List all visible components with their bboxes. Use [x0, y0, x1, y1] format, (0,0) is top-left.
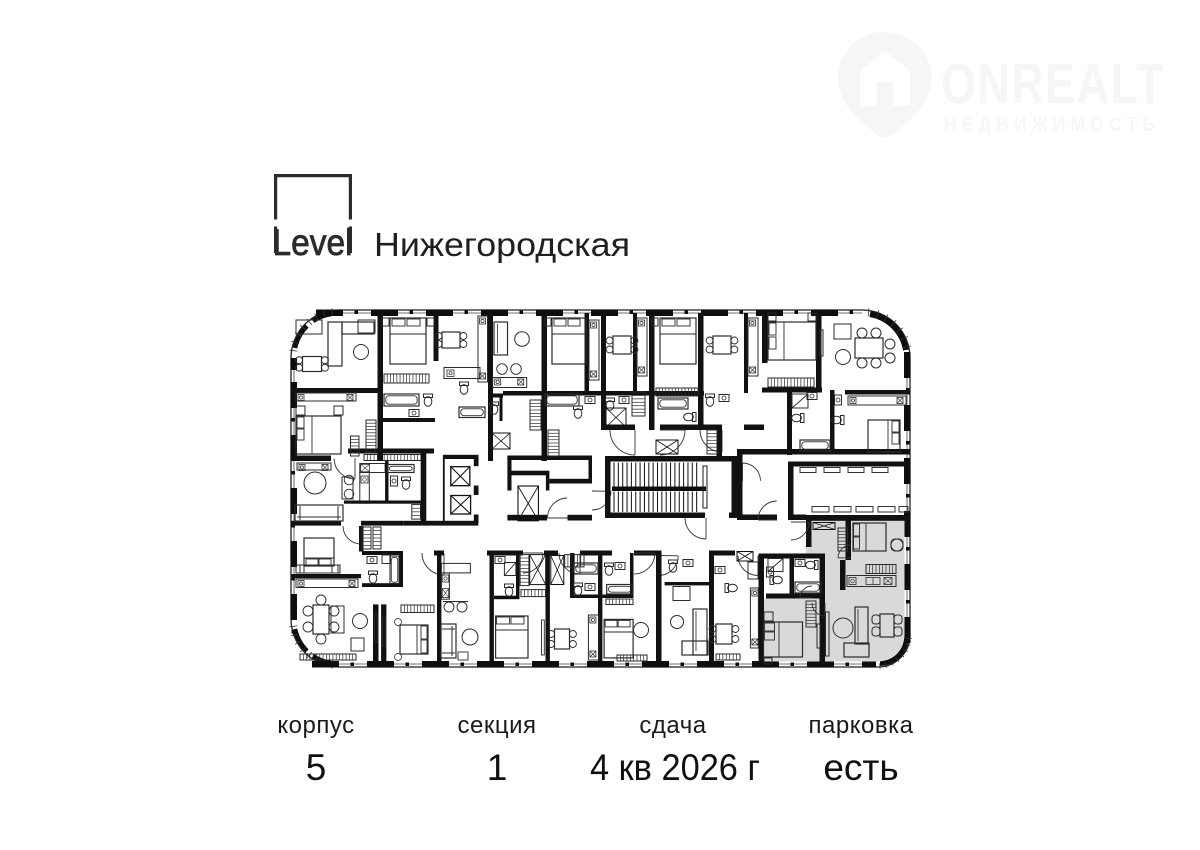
- svg-text:4 кв 2026 г: 4 кв 2026 г: [590, 747, 760, 788]
- svg-text:есть: есть: [823, 747, 898, 788]
- svg-text:Level: Level: [273, 222, 353, 263]
- svg-text:корпус: корпус: [277, 712, 354, 739]
- svg-text:Нижегородская: Нижегородская: [374, 226, 630, 263]
- svg-text:парковка: парковка: [809, 712, 914, 739]
- svg-text:1: 1: [487, 747, 508, 788]
- svg-text:ONREALT: ONREALT: [941, 52, 1165, 116]
- svg-text:сдача: сдача: [639, 712, 706, 739]
- svg-text:5: 5: [306, 747, 327, 788]
- svg-text:НЕДВИЖИМОСТЬ: НЕДВИЖИМОСТЬ: [944, 114, 1160, 136]
- svg-text:секция: секция: [458, 712, 537, 739]
